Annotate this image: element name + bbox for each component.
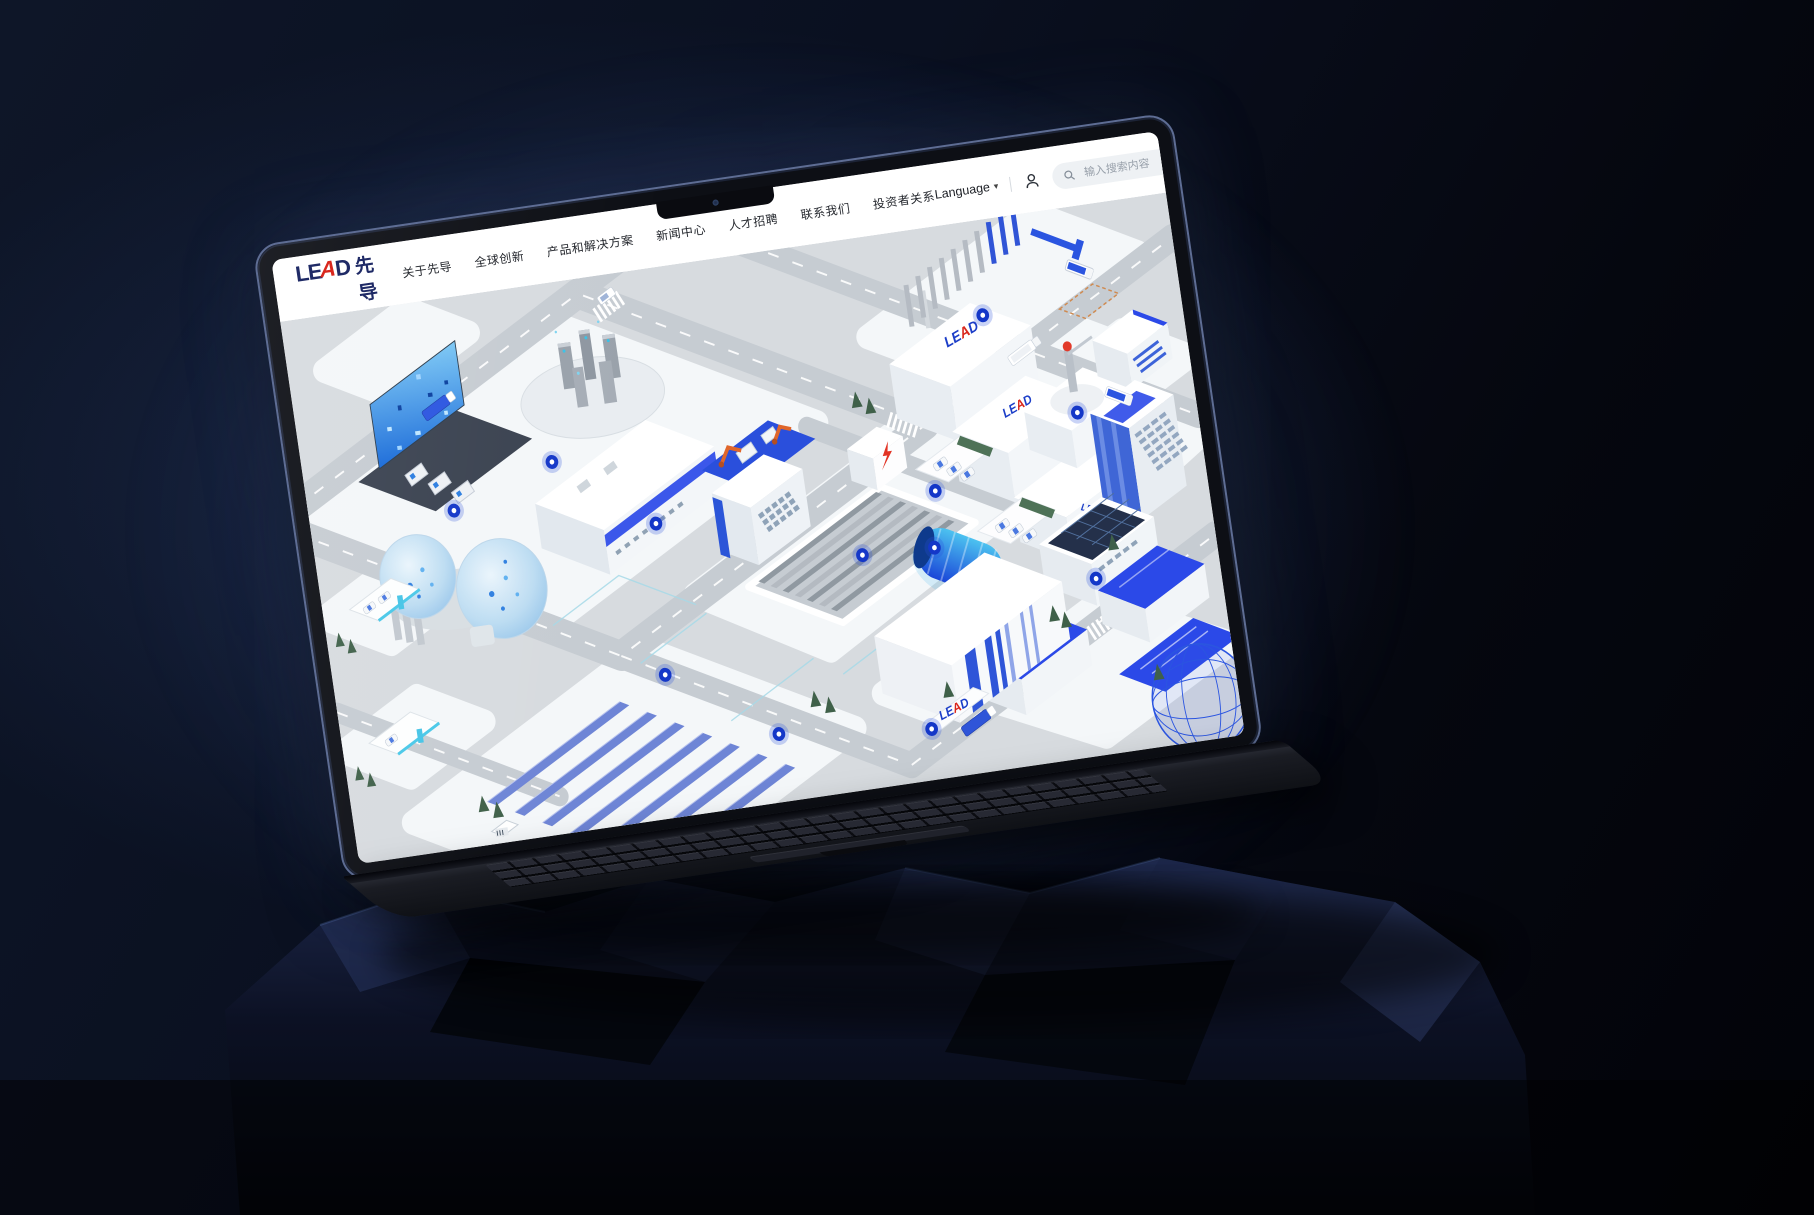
- webcam-icon: [712, 199, 719, 206]
- nav-item-about[interactable]: 关于先导: [401, 257, 453, 281]
- nav-item-careers[interactable]: 人才招聘: [727, 209, 779, 233]
- logo-cn-text: 先导: [353, 250, 381, 306]
- language-label: Language: [934, 180, 991, 202]
- laptop-screen: LEAD 先导 关于先导 全球创新 产品和解决方案 新闻中心 人才招聘 联系我们…: [271, 131, 1245, 864]
- language-dropdown[interactable]: Language ▾: [934, 179, 1000, 202]
- search-icon: [1063, 167, 1077, 183]
- logo-red-a: A: [319, 255, 338, 284]
- divider: [1009, 176, 1012, 191]
- nav-item-investor[interactable]: 投资者关系: [872, 186, 936, 212]
- nav-item-news[interactable]: 新闻中心: [655, 220, 707, 244]
- scene: LEAD 先导 关于先导 全球创新 产品和解决方案 新闻中心 人才招聘 联系我们…: [0, 0, 1814, 1215]
- nav-item-contact[interactable]: 联系我们: [799, 199, 851, 223]
- nav-item-innovation[interactable]: 全球创新: [473, 246, 525, 270]
- chevron-down-icon: ▾: [993, 180, 999, 192]
- user-account-icon[interactable]: [1022, 171, 1042, 191]
- laptop: LEAD 先导 关于先导 全球创新 产品和解决方案 新闻中心 人才招聘 联系我们…: [252, 112, 1260, 883]
- lead-logo[interactable]: LEAD 先导: [294, 250, 381, 315]
- nav-item-products[interactable]: 产品和解决方案: [546, 230, 635, 259]
